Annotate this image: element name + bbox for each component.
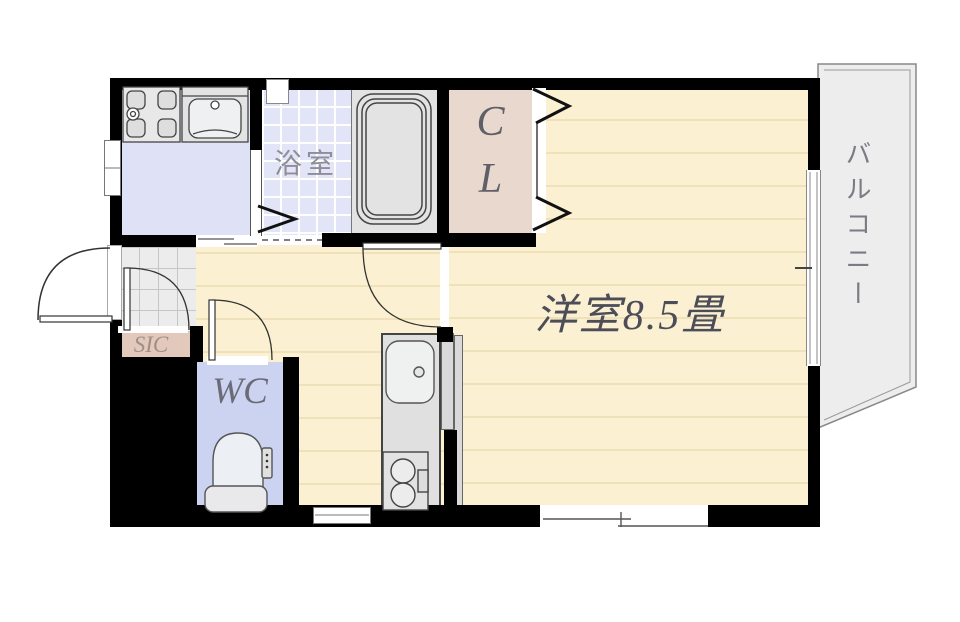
balcony-window-opening: [806, 170, 821, 366]
closet-door-opening: [532, 88, 546, 233]
wall-bottom: [110, 505, 820, 527]
room-laundry: [122, 90, 250, 235]
kitchen-counter: [381, 333, 441, 512]
floor-plan: 浴室 C L 洋室8.5畳 バルコニー SIC WC: [0, 0, 960, 622]
wall-wc-right: [283, 357, 299, 513]
wc-door-opening: [207, 356, 268, 365]
entrance-door-opening: [107, 245, 122, 320]
wc-label: WC: [197, 370, 283, 413]
laundry-sliding-door: [196, 236, 258, 247]
kitchen-partition-upper: [441, 333, 454, 430]
wall-kitchen-partition: [444, 430, 457, 512]
balcony-label: バルコニー: [838, 140, 875, 390]
closet-label: C L: [449, 94, 532, 207]
laundry-window: [104, 140, 121, 196]
bathtub-area: [352, 88, 437, 235]
main-door-opening: [440, 247, 449, 327]
wall-tub-cl: [437, 88, 449, 233]
wall-laundry-bath-divider: [250, 78, 262, 150]
shoe-closet-label: SIC: [112, 332, 190, 358]
wall-below-laundry: [110, 235, 196, 247]
wall-mass-southwest: [110, 357, 197, 513]
bath-pipe-space: [266, 79, 289, 104]
wall-bath-cl-bottom: [322, 233, 536, 247]
entrance-genkan: [120, 247, 196, 332]
kitchen-small-window: [313, 507, 371, 524]
wall-stub-genkan-wc: [190, 326, 203, 362]
entrance-door-icon: [38, 248, 112, 322]
bathroom-label: 浴室: [260, 142, 352, 182]
wall-door-stub: [437, 327, 453, 342]
main-room-label: 洋室8.5畳: [460, 281, 800, 342]
south-window-opening: [540, 505, 708, 527]
wall-top: [110, 78, 820, 90]
